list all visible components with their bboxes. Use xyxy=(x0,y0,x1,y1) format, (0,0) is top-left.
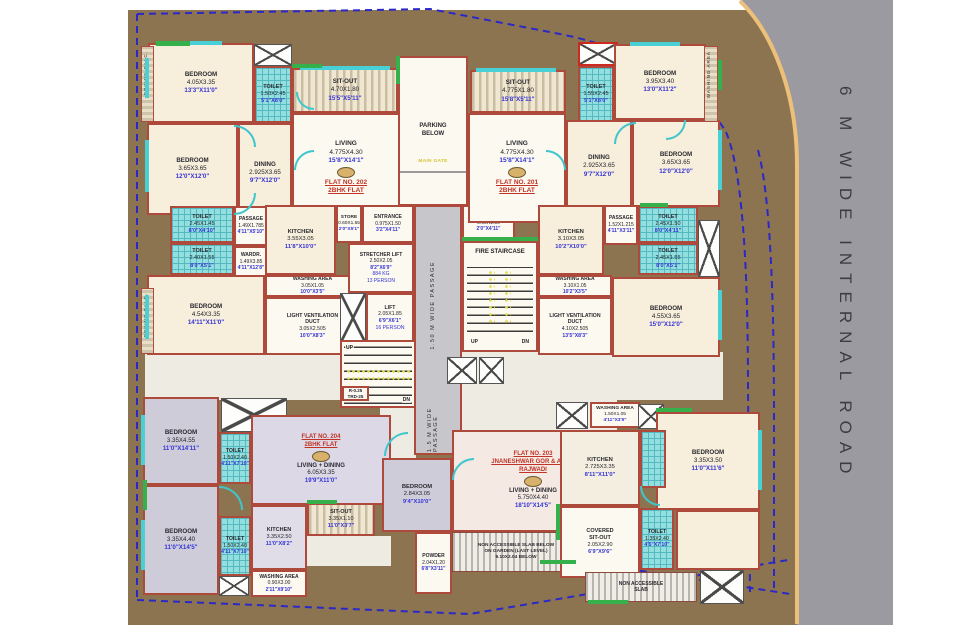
green-wall-segment xyxy=(307,500,337,504)
plan-gap xyxy=(145,352,340,400)
kitchen-204-label-group: KITCHEN3.35X2.5011'0"X8'2" xyxy=(253,507,305,568)
toilet-202-a-name: TOILET xyxy=(263,84,282,91)
lift-dim-2: 6'9"X6'1" xyxy=(379,318,401,325)
covered-sitout-205-dim-1: SIT-OUT xyxy=(589,535,611,542)
washing-205-label-group: WASHING AREA1.50X1.054'11"X3'5" xyxy=(592,404,638,426)
internal-road: 6 M WIDE INTERNAL ROAD xyxy=(797,0,893,625)
kitchen-205-dim-2: 8'11"X11'0" xyxy=(585,472,616,480)
living-201-name: LIVING xyxy=(506,140,528,148)
stair-dots xyxy=(346,368,410,382)
bedroom-201-a-dim-2: 13'0"X11'2" xyxy=(643,86,676,94)
green-wall-segment xyxy=(588,600,628,604)
toilet-204-b-name: TOILET xyxy=(226,536,244,543)
duct-xbox xyxy=(479,357,504,384)
stretcher-lift-label-group: STRETCHER LIFT2.50X2.058'2"X6'9"884 KG13… xyxy=(350,245,412,291)
store-202-dim-2: 2'0"X5'1" xyxy=(339,227,360,233)
toilet-204-a-dim-1: 1.50X2.40 xyxy=(223,455,247,462)
bedroom-201-a-label-group: BEDROOM3.95X3.4013'0"X11'2" xyxy=(616,46,704,118)
dn-label: DN xyxy=(402,397,411,403)
passage-label-text: 1.50 M WIDE PASSAGE xyxy=(430,261,436,350)
kitchen-205-label-group: KITCHEN2.725X3.358'11"X11'0" xyxy=(562,432,638,504)
bedroom-205-dim-2: 11'0"X11'6" xyxy=(692,465,725,473)
duct-xbox xyxy=(340,293,366,343)
window-marker xyxy=(630,42,680,46)
bedroom-204-b: BEDROOM3.35X4.4011'0"X14'5" xyxy=(143,485,219,595)
main-gate-label: MAIN GATE xyxy=(400,159,466,164)
duct-xbox xyxy=(578,42,618,66)
green-wall-segment xyxy=(292,64,322,68)
lvd-201-dim-1: DUCT xyxy=(568,319,582,326)
kitchen-204-dim-1: 3.35X2.50 xyxy=(266,534,291,541)
washing-201: WASHING AREA3.10X1.0510'2"X3'5" xyxy=(538,275,612,297)
slab-205-dim-1: SLAB xyxy=(634,587,648,594)
bedroom-201-c-label-group: BEDROOM4.55X3.6515'0"X12'0" xyxy=(614,279,718,355)
kitchen-205: KITCHEN2.725X3.358'11"X11'0" xyxy=(560,430,640,506)
stretcher-lift-dim-4: 13 PERSON xyxy=(367,278,395,285)
lift-dim-1: 2.05X1.85 xyxy=(378,311,402,318)
duct-xbox xyxy=(556,402,588,429)
parking-name: PARKING xyxy=(419,123,446,131)
flat-2-line-2: RAJWADI xyxy=(519,467,547,475)
kitchen-202-label-group: KITCHEN3.55X3.0511'8"X10'0" xyxy=(267,207,334,273)
kitchen-202-dim-1: 3.55X3.05 xyxy=(287,236,313,244)
bedroom-202-c-dim-2: 14'11"X11'0" xyxy=(188,319,224,327)
bedroom-202-b-dim-2: 12'0"X12'0" xyxy=(176,173,210,181)
toilet-201-c-dim-2: 8'0"X5'1" xyxy=(656,263,680,270)
living-201-dim-2: 15'8"X14'1" xyxy=(499,157,534,165)
stair-treads xyxy=(467,267,533,332)
cream xyxy=(676,510,760,570)
duct-xbox xyxy=(698,220,720,277)
flat-marker-oval xyxy=(337,167,355,178)
bedroom-205-name: BEDROOM xyxy=(692,449,724,457)
entrance-201-dim-2: 2'0"X4'11" xyxy=(476,226,500,233)
lvd-202-name: LIGHT VENTILATION xyxy=(287,313,338,320)
bedroom-202-c-name: BEDROOM xyxy=(190,303,222,311)
washing-204-label-group: WASHING AREA0.90X3.002'11"X9'10" xyxy=(253,572,305,595)
green-wall-segment xyxy=(396,56,400,84)
kitchen-205-name: KITCHEN xyxy=(587,457,613,465)
duct-xbox xyxy=(219,576,249,596)
sitout-204: SIT-OUT3.35X1.1011'0"X3'7" xyxy=(307,503,375,536)
store-202-label-group: STORE0.60X1.552'0"X5'1" xyxy=(338,207,360,241)
entrance-202: ENTRANCE0.975X1.503'2"X4'11" xyxy=(362,205,414,243)
passage-201: PASSAGE1.52X1.2154'11"X3'11" xyxy=(604,205,638,245)
kitchen-202-dim-2: 11'8"X10'0" xyxy=(285,244,316,252)
kitchen-201-dim-2: 10'2"X10'0" xyxy=(555,244,586,252)
toilet-202-c-label-group: TOILET2.40X1.558'0"X5'1" xyxy=(172,245,232,273)
store-202: STORE0.60X1.552'0"X5'1" xyxy=(336,205,362,243)
dining-202-dim-2: 9'7"X12'0" xyxy=(250,177,280,185)
fire-staircase-label: FIRE STAIRCASE xyxy=(464,249,536,255)
sitout-201-label-group: SIT-OUT4.775X1.8015'8"X5'11" xyxy=(472,72,564,111)
kitchen-201-label-group: KITCHEN3.10X3.0510'2"X10'0" xyxy=(540,207,602,273)
washing-204: WASHING AREA0.90X3.002'11"X9'10" xyxy=(251,570,307,597)
livdin-203-dim-1: 5.750X4.40 xyxy=(518,495,549,503)
bedroom-205: BEDROOM3.35X3.5011'0"X11'6" xyxy=(656,412,760,510)
green-wall-segment xyxy=(556,504,560,540)
bedroom-201-a-name: BEDROOM xyxy=(644,70,676,78)
lvd-201-dim-3: 13'5"X8'3" xyxy=(562,333,587,340)
toilet-202-c-dim-1: 2.40X1.55 xyxy=(189,255,214,262)
toilet-202-c-dim-2: 8'0"X5'1" xyxy=(190,263,214,270)
bedroom-201-b-dim-1: 3.65X3.65 xyxy=(662,159,690,167)
green-wall-segment xyxy=(540,560,576,564)
kitchen-201-name: KITCHEN xyxy=(558,229,584,237)
sitout-202-dim-1: 4.70X1.80 xyxy=(331,86,359,94)
toilet-202-a-dim-2: 5'1"X8'0" xyxy=(261,98,285,105)
dn-label: DN xyxy=(521,339,530,345)
passage-201-dim-2: 4'11"X3'11" xyxy=(608,228,635,235)
wardrobe-202-label-group: WARDR.1.49X3.854'11"X12'8" xyxy=(236,248,266,276)
livdin-204-name: LIVING + DINING xyxy=(297,463,345,471)
parking: PARKINGBELOW xyxy=(398,56,468,206)
kitchen-205-dim-1: 2.725X3.35 xyxy=(585,464,615,472)
bedroom-204-a: BEDROOM3.35X4.5511'0"X14'11" xyxy=(143,397,219,485)
bedroom-203-dim-1: 2.84X3.05 xyxy=(404,491,430,499)
toilet-202-a-label-group: TOILET1.50X2.455'1"X8'0" xyxy=(256,68,290,121)
toilet-202-b-name: TOILET xyxy=(192,214,211,221)
sitout-204-dim-2: 11'0"X3'7" xyxy=(328,523,355,530)
sitout-204-label-group: SIT-OUT3.35X1.1011'0"X3'7" xyxy=(309,505,373,534)
slab-205-label-group: NON ACCESSIBLESLAB xyxy=(586,573,696,601)
washing-201-dim-2: 10'2"X3'5" xyxy=(563,289,587,295)
toilet-201-b: TOILET2.45X1.508'0"X4'11" xyxy=(638,206,698,243)
green-wall-segment xyxy=(640,203,668,207)
up-label: UP xyxy=(470,339,479,345)
duct-xbox xyxy=(254,44,292,66)
road-label: 6 M WIDE INTERNAL ROAD xyxy=(835,86,855,481)
bedroom-203-name: BEDROOM xyxy=(402,484,432,492)
bedroom-204-b-label-group: BEDROOM3.35X4.4011'0"X14'5" xyxy=(145,487,217,593)
flat-0-line-1: 2BHK FLAT xyxy=(328,187,364,195)
toilet-201-b-dim-1: 2.45X1.50 xyxy=(655,221,680,228)
toilet-204-a-dim-2: 4'11"X7'10" xyxy=(221,461,249,468)
toilet-202-b: TOILET2.45X1.458'0"X4'10" xyxy=(170,206,234,243)
flat-marker-oval xyxy=(312,451,330,462)
flat-2-line-0: FLAT NO. 203 xyxy=(514,451,553,459)
lvd-202-dim-3: 10'0"X8'3" xyxy=(300,333,325,340)
green-wall-segment xyxy=(718,60,722,90)
toilet-204-a-name: TOILET xyxy=(226,448,244,455)
window-marker xyxy=(718,130,722,190)
sitout-201-dim-2: 15'8"X5'11" xyxy=(501,96,534,104)
wet xyxy=(640,430,666,488)
toilet-201-c-label-group: TOILET2.45X1.558'0"X5'1" xyxy=(640,245,696,273)
duct-xbox xyxy=(447,357,477,384)
covered-sitout-205-dim-2: 2.05X2.90 xyxy=(587,542,612,549)
washing-205-dim-2: 4'11"X3'5" xyxy=(603,418,626,424)
sitout-201-name: SIT-OUT xyxy=(506,79,530,87)
bedroom-201-b-name: BEDROOM xyxy=(660,151,692,159)
passage-label: 1.50 M WIDE PASSAGE xyxy=(424,242,442,368)
flat-0-line-0: FLAT NO. 202 xyxy=(325,179,367,187)
toilet-202-a-dim-1: 1.50X2.45 xyxy=(260,91,285,98)
toilet-204-b-dim-2: 4'11"X7'10" xyxy=(221,549,249,556)
toilet-205-name: TOILET xyxy=(648,529,666,536)
bedroom-203-label-group: BEDROOM2.84X3.059'4"X10'0" xyxy=(384,460,450,530)
window-marker xyxy=(145,140,149,192)
window-marker xyxy=(141,415,145,465)
toilet-205-label-group: TOILET1.35X2.404'5"X7'10" xyxy=(642,510,672,568)
toilet-202-b-dim-1: 2.45X1.45 xyxy=(189,221,214,228)
bedroom-204-b-dim-2: 11'0"X14'5" xyxy=(164,544,197,552)
lvd-201-label-group: LIGHT VENTILATIONDUCT4.10X2.50513'5"X8'3… xyxy=(540,299,610,353)
toilet-204-a: TOILET1.50X2.404'11"X7'10" xyxy=(219,432,251,484)
tread-note-dim-1: TRD-25 xyxy=(348,394,364,400)
lvd-201-dim-2: 4.10X2.505 xyxy=(562,326,589,333)
bedroom-204-b-dim-1: 3.35X4.40 xyxy=(167,536,195,544)
parking-dim-1: BELOW xyxy=(422,131,444,139)
bedroom-202-c-dim-1: 4.54X3.35 xyxy=(192,311,220,319)
livdin-204-dim-2: 19'9"X11'0" xyxy=(305,478,337,486)
plan-gap xyxy=(307,536,391,566)
toilet-201-b-dim-2: 8'0"X4'11" xyxy=(655,228,682,235)
lvd-201: LIGHT VENTILATIONDUCT4.10X2.50513'5"X8'3… xyxy=(538,297,612,355)
sitout-202-name: SIT-OUT xyxy=(333,78,357,86)
kitchen-201-dim-1: 3.10X3.05 xyxy=(558,236,584,244)
living-202-dim-1: 4.775X4.30 xyxy=(329,149,362,157)
wardrobe-202: WARDR.1.49X3.854'11"X12'8" xyxy=(234,246,268,278)
bedroom-204-a-name: BEDROOM xyxy=(165,429,197,437)
kitchen-202-name: KITCHEN xyxy=(288,229,314,237)
bedroom-201-c-dim-2: 15'0"X12'0" xyxy=(649,321,683,329)
entrance-202-dim-2: 3'2"X4'11" xyxy=(376,227,400,234)
lvd-202-dim-1: DUCT xyxy=(305,319,319,326)
lift-label-group: LIFT2.05X1.856'9"X6'1"16 PERSON xyxy=(368,295,412,341)
washing-204-dim-2: 2'11"X9'10" xyxy=(266,587,293,594)
kitchen-204: KITCHEN3.35X2.5011'0"X8'2" xyxy=(251,505,307,570)
passage-202-dim-2: 4'11"X5'10" xyxy=(238,229,265,236)
livdin-204: FLAT NO. 2042BHK FLATLIVING + DINING6.05… xyxy=(251,415,391,505)
slab-203-dim-2: 9.10X2.04 BELOW xyxy=(495,555,536,561)
lift-dim-3: 16 PERSON xyxy=(375,325,404,332)
window-marker xyxy=(141,520,145,570)
bedroom-204-a-dim-2: 11'0"X14'11" xyxy=(163,445,199,453)
bedroom-201-c-dim-1: 4.55X3.65 xyxy=(652,313,680,321)
bedroom-202-c-label-group: BEDROOM4.54X3.3514'11"X11'0" xyxy=(149,277,263,353)
toilet-202-c: TOILET2.40X1.558'0"X5'1" xyxy=(170,243,234,275)
duct-xbox xyxy=(700,570,744,604)
washing-strip-label: WASHING AREA xyxy=(706,51,711,98)
toilet-202-a: TOILET1.50X2.455'1"X8'0" xyxy=(254,66,292,123)
covered-sitout-205-dim-3: 6'9"X9'6" xyxy=(588,549,612,556)
parking-label-group: PARKINGBELOW xyxy=(400,58,466,204)
washing-201-label-group: WASHING AREA3.10X1.0510'2"X3'5" xyxy=(540,277,610,295)
bedroom-201-c: BEDROOM4.55X3.6515'0"X12'0" xyxy=(612,277,720,357)
dining-202-name: DINING xyxy=(254,161,276,169)
window-marker xyxy=(145,295,149,339)
kitchen-204-name: KITCHEN xyxy=(267,527,291,534)
green-wall-segment xyxy=(656,408,692,412)
bedroom-204-a-label-group: BEDROOM3.35X4.5511'0"X14'11" xyxy=(145,399,217,483)
flat-3-line-1: 2BHK FLAT xyxy=(305,442,338,450)
lift-name: LIFT xyxy=(385,305,396,312)
window-marker xyxy=(718,290,722,340)
tread-note-label-group: R-0.25TRD-25 xyxy=(344,388,367,399)
window-marker xyxy=(476,68,556,72)
lvd-202-dim-2: 3.05X2.505 xyxy=(299,326,326,333)
washing-202-dim-2: 10'0"X3'5" xyxy=(300,289,324,295)
bedroom-201-b-dim-2: 12'0"X12'0" xyxy=(659,168,693,176)
bedroom-204-a-dim-1: 3.35X4.55 xyxy=(167,437,195,445)
kitchen-202: KITCHEN3.55X3.0511'8"X10'0" xyxy=(265,205,336,275)
fire-staircase: FIRE STAIRCASEUPDN xyxy=(462,241,538,352)
toilet-201-b-name: TOILET xyxy=(658,214,677,221)
lift: LIFT2.05X1.856'9"X6'1"16 PERSON xyxy=(366,293,414,343)
bedroom-204-b-name: BEDROOM xyxy=(165,528,197,536)
toilet-201-c-name: TOILET xyxy=(658,248,677,255)
powder-203-label-group: POWDER2.04X1.206'8"X3'11" xyxy=(417,534,450,592)
livdin-203-name: LIVING + DINING xyxy=(509,488,557,496)
kitchen-204-dim-2: 11'0"X8'2" xyxy=(266,541,293,548)
powder-203-dim-2: 6'8"X3'11" xyxy=(421,566,445,573)
washing-205: WASHING AREA1.50X1.054'11"X3'5" xyxy=(590,402,640,428)
toilet-202-b-dim-2: 8'0"X4'10" xyxy=(189,228,216,235)
bedroom-205-label-group: BEDROOM3.35X3.5011'0"X11'6" xyxy=(658,414,758,508)
toilet-204-a-label-group: TOILET1.50X2.404'11"X7'10" xyxy=(221,434,249,482)
toilet-205-dim-2: 4'5"X7'10" xyxy=(644,542,669,549)
sitout-202-dim-2: 15'5"X5'11" xyxy=(328,95,361,103)
sitout-204-dim-1: 3.35X1.10 xyxy=(328,516,353,523)
bedroom-203-dim-2: 9'4"X10'0" xyxy=(403,499,431,507)
bedroom-202-a-dim-2: 13'3"X11'0" xyxy=(184,87,217,95)
passage-label: 1.5 M WIDE PASSAGE xyxy=(424,372,442,452)
flat-3-line-0: FLAT NO. 204 xyxy=(302,434,341,442)
toilet-201-a-dim-2: 5'1"X8'0" xyxy=(584,98,608,105)
covered-sitout-205-label-group: COVEREDSIT-OUT2.05X2.906'9"X9'6" xyxy=(562,508,638,576)
tread-note: R-0.25TRD-25 xyxy=(342,386,369,401)
toilet-201-c-dim-1: 2.45X1.55 xyxy=(655,255,680,262)
toilet-201-a-name: TOILET xyxy=(586,84,605,91)
sitout-201: SIT-OUT4.775X1.8015'8"X5'11" xyxy=(470,70,566,113)
toilet-205: TOILET1.35X2.404'5"X7'10" xyxy=(640,508,674,570)
covered-sitout-205: COVEREDSIT-OUT2.05X2.906'9"X9'6" xyxy=(560,506,640,578)
dining-201-dim-1: 2.925X3.65 xyxy=(583,162,615,170)
flat-1-line-0: FLAT NO. 201 xyxy=(496,179,538,187)
toilet-202-b-label-group: TOILET2.45X1.458'0"X4'10" xyxy=(172,208,232,241)
living-202-dim-2: 15'8"X14'1" xyxy=(328,157,363,165)
green-wall-segment xyxy=(156,41,190,46)
livdin-203-dim-2: 18'10"X14'5" xyxy=(515,503,551,511)
living-202-name: LIVING xyxy=(335,140,357,148)
livdin-204-label-group: FLAT NO. 2042BHK FLATLIVING + DINING6.05… xyxy=(253,417,389,503)
flat-1-line-1: 2BHK FLAT xyxy=(499,187,535,195)
passage-201-label-group: PASSAGE1.52X1.2154'11"X3'11" xyxy=(606,207,636,243)
stair-dots xyxy=(488,269,495,327)
bedroom-202-a-name: BEDROOM xyxy=(185,71,217,79)
toilet-204-b-label-group: TOILET1.50X2.404'11"X7'10" xyxy=(221,518,249,574)
bedroom-202-b: BEDROOM3.65X3.6512'0"X12'0" xyxy=(147,123,238,215)
livdin-204-dim-1: 6.05X3.35 xyxy=(307,470,334,478)
window-marker xyxy=(758,430,762,490)
bedroom-202-b-label-group: BEDROOM3.65X3.6512'0"X12'0" xyxy=(149,125,236,213)
toilet-201-a-dim-1: 1.55X2.45 xyxy=(583,91,608,98)
toilet-204-b: TOILET1.50X2.404'11"X7'10" xyxy=(219,516,251,576)
entrance-202-label-group: ENTRANCE0.975X1.503'2"X4'11" xyxy=(364,207,412,241)
flat-marker-oval xyxy=(524,476,542,487)
bedroom-201-c-name: BEDROOM xyxy=(650,305,682,313)
passage-label-text: 1.5 M WIDE PASSAGE xyxy=(427,372,439,452)
floor-plan-page: 6 M WIDE INTERNAL ROAD BEDROOM4.05X3.351… xyxy=(0,0,957,625)
stretcher-lift: STRETCHER LIFT2.50X2.058'2"X6'9"884 KG13… xyxy=(348,243,414,293)
dining-201-dim-2: 9'7"X12'0" xyxy=(584,171,614,179)
bedroom-201-a: BEDROOM3.95X3.4013'0"X11'2" xyxy=(614,44,706,120)
powder-203: POWDER2.04X1.206'8"X3'11" xyxy=(415,532,452,594)
lvd-201-name: LIGHT VENTILATION xyxy=(549,313,600,320)
toilet-201-a: TOILET1.55X2.455'1"X8'0" xyxy=(578,66,614,123)
bedroom-201-a-dim-1: 3.95X3.40 xyxy=(646,78,674,86)
wardrobe-202-dim-2: 4'11"X12'8" xyxy=(238,265,265,272)
toilet-201-c: TOILET2.45X1.558'0"X5'1" xyxy=(638,243,698,275)
green-wall-segment xyxy=(462,237,538,241)
dining-201-name: DINING xyxy=(588,154,610,162)
bedroom-202-b-name: BEDROOM xyxy=(176,157,208,165)
stair-dots xyxy=(504,269,511,327)
covered-sitout-205-name: COVERED xyxy=(586,528,613,535)
bedroom-202-a: BEDROOM4.05X3.3513'3"X11'0" xyxy=(148,43,254,123)
bedroom-203: BEDROOM2.84X3.059'4"X10'0" xyxy=(382,458,452,532)
living-201-dim-1: 4.775X4.30 xyxy=(500,149,533,157)
bedroom-205-dim-1: 3.35X3.50 xyxy=(694,457,722,465)
bedroom-202-a-label-group: BEDROOM4.05X3.3513'3"X11'0" xyxy=(150,45,252,121)
sitout-201-dim-1: 4.775X1.80 xyxy=(502,87,534,95)
green-wall-segment xyxy=(143,480,147,510)
bedroom-202-c: BEDROOM4.54X3.3514'11"X11'0" xyxy=(147,275,265,355)
toilet-205-dim-1: 1.35X2.40 xyxy=(645,536,669,543)
up-label: UP xyxy=(345,345,354,351)
washing-strip: WASHING AREA xyxy=(704,46,718,122)
bedroom-202-b-dim-1: 3.65X3.65 xyxy=(178,165,206,173)
kitchen-201: KITCHEN3.10X3.0510'2"X10'0" xyxy=(538,205,604,275)
parking-divider-line xyxy=(400,171,466,173)
toilet-201-a-label-group: TOILET1.55X2.455'1"X8'0" xyxy=(580,68,612,121)
toilet-204-b-dim-1: 1.50X2.40 xyxy=(223,543,247,550)
bedroom-202-a-dim-1: 4.05X3.35 xyxy=(187,79,215,87)
window-marker xyxy=(145,58,149,98)
flat-marker-oval xyxy=(508,167,526,178)
toilet-202-c-name: TOILET xyxy=(192,248,211,255)
slab-205: NON ACCESSIBLESLAB xyxy=(585,572,697,602)
sitout-204-name: SIT-OUT xyxy=(330,509,352,516)
toilet-201-b-label-group: TOILET2.45X1.508'0"X4'11" xyxy=(640,208,696,241)
dining-202-dim-1: 2.925X3.65 xyxy=(249,169,281,177)
